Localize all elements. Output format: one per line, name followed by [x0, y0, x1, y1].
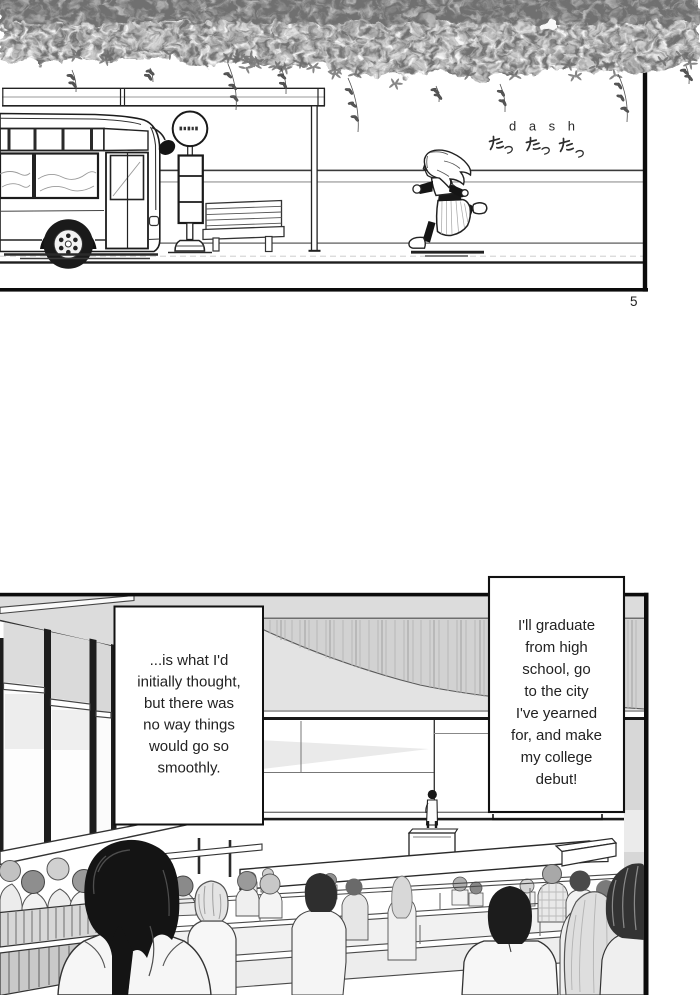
svg-text:initially thought,: initially thought, — [137, 674, 240, 691]
svg-text:to the city: to the city — [524, 683, 589, 700]
svg-text:smoothly.: smoothly. — [157, 760, 220, 777]
svg-text:5: 5 — [630, 294, 638, 309]
svg-text:but there was: but there was — [144, 695, 234, 712]
svg-text:...is what I'd: ...is what I'd — [150, 652, 229, 669]
svg-text:d a s h: d a s h — [509, 119, 580, 134]
svg-text:for, and make: for, and make — [511, 727, 602, 744]
svg-text:I'll graduate: I'll graduate — [518, 617, 595, 634]
svg-text:my college: my college — [521, 749, 593, 766]
svg-text:would go so: would go so — [148, 738, 229, 755]
svg-text:debut!: debut! — [536, 771, 578, 788]
svg-text:from high: from high — [525, 639, 588, 656]
svg-text:school, go: school, go — [522, 661, 590, 678]
svg-text:I've yearned: I've yearned — [516, 705, 597, 722]
svg-text:no way things: no way things — [143, 717, 235, 734]
